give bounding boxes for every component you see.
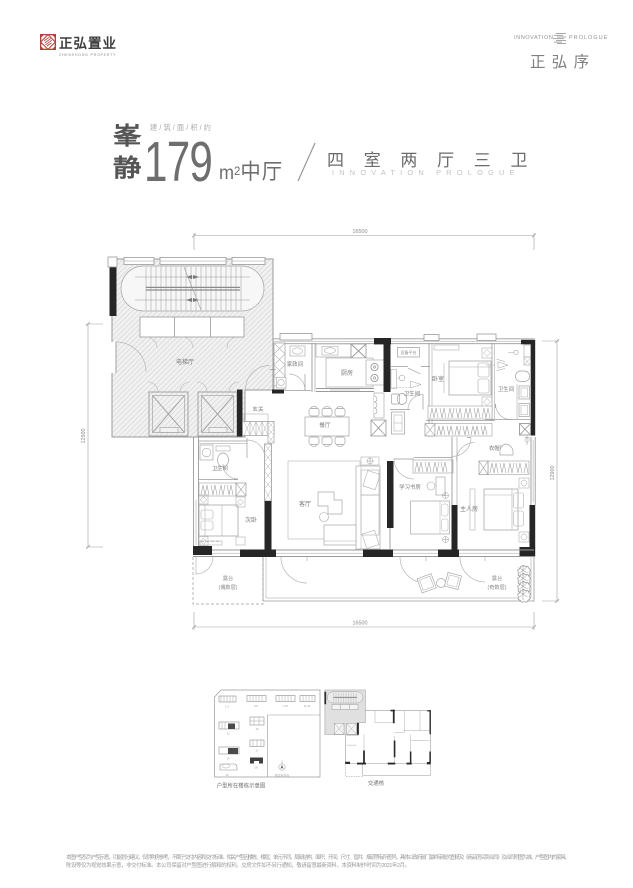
svg-text:电梯厅: 电梯厅 — [176, 358, 194, 366]
svg-text:(奇数层): (奇数层) — [487, 583, 506, 591]
svg-text:卫生间: 卫生间 — [212, 464, 228, 472]
svg-text:户型所在楼栋示意图: 户型所在楼栋示意图 — [217, 782, 266, 790]
svg-text:本图户型仅为户型示意，功能划分建议，仅供购房参考，不属于交付: 本图户型仅为户型示意，功能划分建议，仅供购房参考，不属于交付内容和交付标准。相关… — [66, 853, 570, 861]
svg-text:卫生间: 卫生间 — [404, 390, 420, 398]
svg-text:(偶数层): (偶数层) — [218, 583, 237, 591]
svg-text:卧室: 卧室 — [432, 375, 444, 383]
svg-text:12500: 12500 — [81, 429, 87, 444]
svg-text:学习书房: 学习书房 — [399, 483, 421, 491]
svg-text:厨房: 厨房 — [341, 369, 353, 377]
svg-text:16500: 16500 — [353, 229, 368, 235]
svg-text:3-6: 3-6 — [254, 704, 258, 708]
svg-text:次卧: 次卧 — [245, 516, 257, 524]
svg-text:露台: 露台 — [223, 574, 233, 582]
svg-text:1-2: 1-2 — [225, 705, 229, 709]
svg-text:主人房: 主人房 — [460, 505, 478, 513]
svg-text:16500: 16500 — [353, 621, 368, 627]
svg-text:陈设等仅为视觉效果示意，非交付标准。本公司保留对户型图进行解: 陈设等仅为视觉效果示意，非交付标准。本公司保留对户型图进行解释的权利。交房文件如… — [66, 861, 410, 869]
svg-text:11-12: 11-12 — [304, 704, 311, 708]
svg-text:7-10: 7-10 — [282, 704, 288, 708]
svg-text:12900: 12900 — [550, 466, 556, 481]
svg-text:指北针方向: 指北针方向 — [275, 774, 289, 778]
svg-text:客厅: 客厅 — [299, 500, 311, 508]
svg-text:交通核: 交通核 — [368, 779, 385, 787]
svg-text:设备平台: 设备平台 — [401, 349, 417, 355]
svg-text:露台: 露台 — [492, 574, 502, 582]
svg-text:玄关: 玄关 — [252, 405, 264, 413]
svg-text:卫生间: 卫生间 — [498, 385, 514, 393]
svg-text:家政间: 家政间 — [287, 360, 303, 368]
svg-text:餐厅: 餐厅 — [319, 421, 331, 429]
